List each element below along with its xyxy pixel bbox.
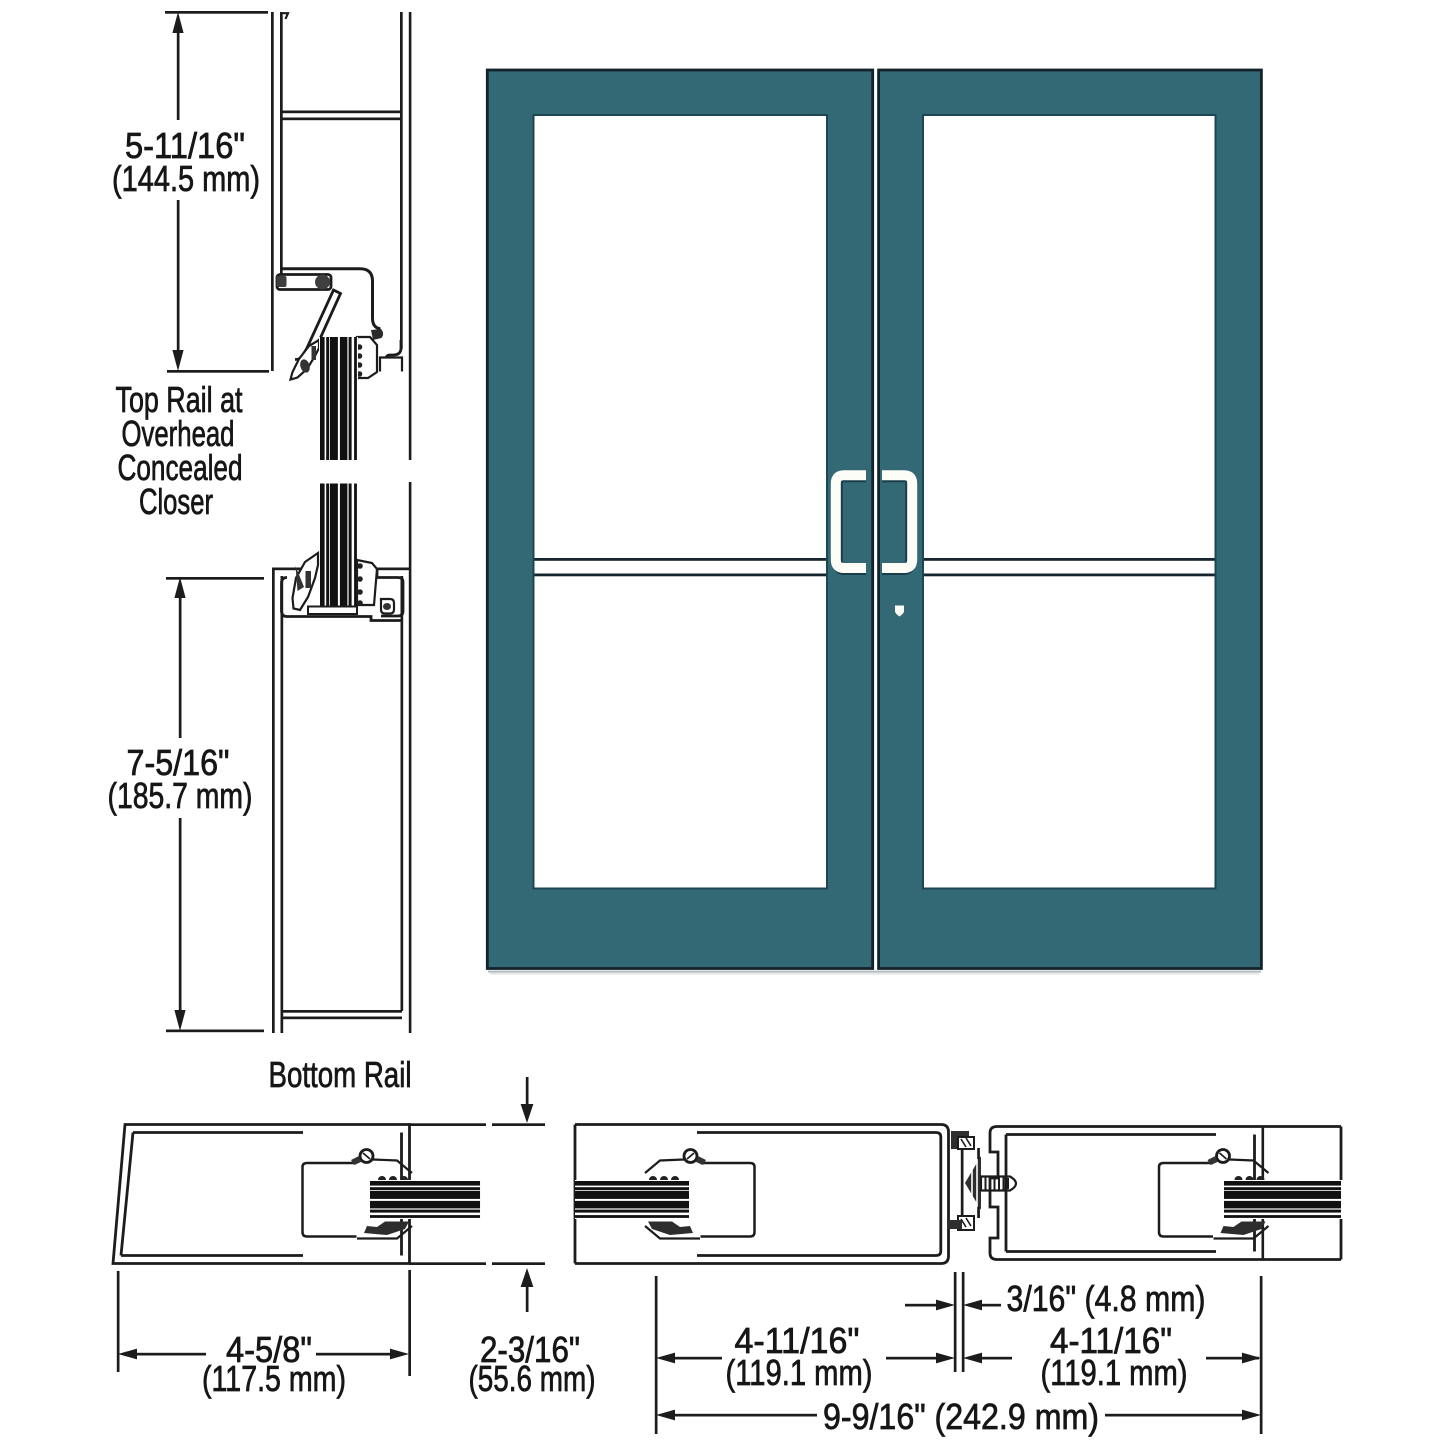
svg-text:Closer: Closer [139, 481, 213, 522]
svg-text:Bottom Rail: Bottom Rail [269, 1054, 412, 1095]
svg-text:3/16" (4.8 mm): 3/16" (4.8 mm) [1007, 1278, 1206, 1319]
svg-text:9-9/16" (242.9 mm): 9-9/16" (242.9 mm) [823, 1396, 1099, 1437]
svg-text:(185.7 mm): (185.7 mm) [108, 775, 253, 816]
svg-text:(144.5 mm): (144.5 mm) [112, 158, 260, 199]
svg-text:(119.1 mm): (119.1 mm) [1041, 1352, 1188, 1393]
svg-text:(55.6 mm): (55.6 mm) [469, 1358, 596, 1399]
svg-text:(119.1 mm): (119.1 mm) [726, 1352, 873, 1393]
svg-text:(117.5 mm): (117.5 mm) [202, 1358, 346, 1399]
